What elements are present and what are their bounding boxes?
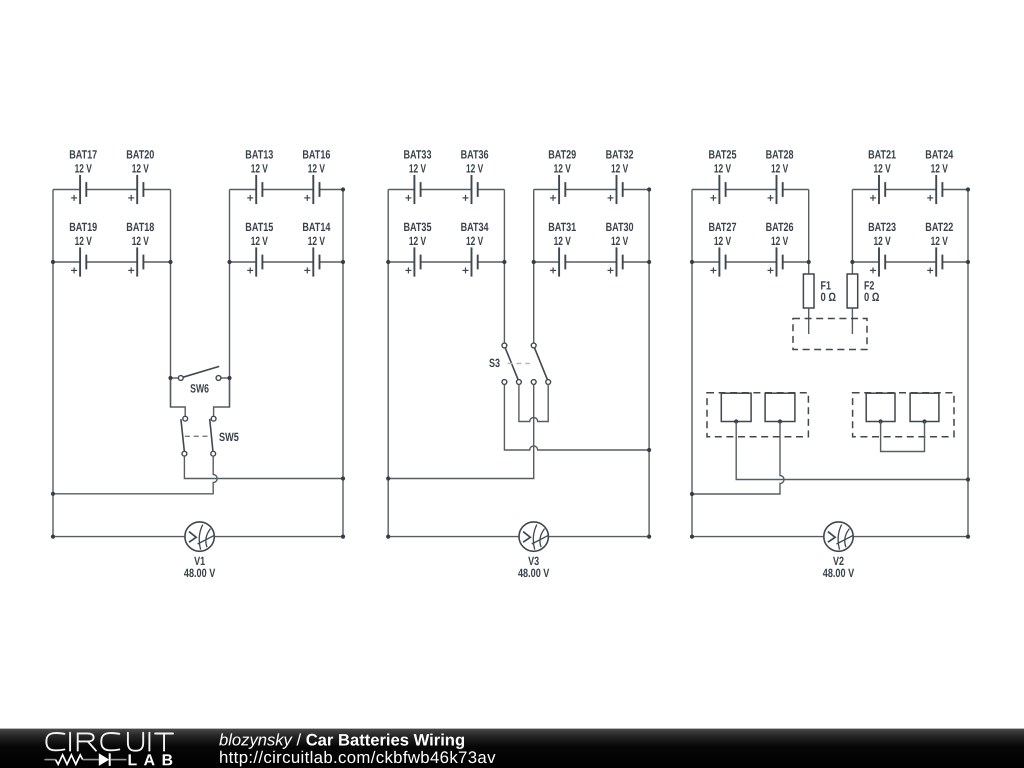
svg-text:12 V: 12 V xyxy=(251,162,268,176)
svg-text:12 V: 12 V xyxy=(771,234,788,248)
svg-text:S3: S3 xyxy=(489,356,500,370)
svg-text:12 V: 12 V xyxy=(931,234,948,248)
svg-text:SW5: SW5 xyxy=(219,430,239,444)
svg-text:BAT17: BAT17 xyxy=(69,148,97,162)
svg-text:12 V: 12 V xyxy=(931,162,948,176)
svg-text:12 V: 12 V xyxy=(132,234,149,248)
svg-text:12 V: 12 V xyxy=(554,234,571,248)
svg-text:http://circuitlab.com/ckbfwb46: http://circuitlab.com/ckbfwb46k73av xyxy=(219,748,496,767)
svg-text:BAT35: BAT35 xyxy=(403,220,431,234)
svg-text:12 V: 12 V xyxy=(611,234,628,248)
svg-text:48.00 V: 48.00 V xyxy=(823,566,854,580)
svg-text:BAT16: BAT16 xyxy=(302,148,330,162)
svg-text:BAT21: BAT21 xyxy=(868,148,896,162)
svg-text:BAT27: BAT27 xyxy=(708,220,736,234)
svg-text:BAT29: BAT29 xyxy=(548,148,576,162)
svg-text:12 V: 12 V xyxy=(75,234,92,248)
svg-text:BAT25: BAT25 xyxy=(708,148,736,162)
svg-text:12 V: 12 V xyxy=(771,162,788,176)
svg-text:48.00 V: 48.00 V xyxy=(184,566,215,580)
svg-text:12 V: 12 V xyxy=(308,234,325,248)
svg-text:BAT23: BAT23 xyxy=(868,220,896,234)
svg-text:12 V: 12 V xyxy=(466,234,483,248)
svg-text:BAT14: BAT14 xyxy=(302,220,330,234)
svg-text:12 V: 12 V xyxy=(873,162,890,176)
svg-text:BAT20: BAT20 xyxy=(126,148,154,162)
svg-text:12 V: 12 V xyxy=(132,162,149,176)
svg-text:SW6: SW6 xyxy=(190,382,209,396)
svg-text:12 V: 12 V xyxy=(251,234,268,248)
svg-text:BAT19: BAT19 xyxy=(69,220,97,234)
svg-text:BAT24: BAT24 xyxy=(925,148,953,162)
svg-text:blozynsky / Car Batteries Wiri: blozynsky / Car Batteries Wiring xyxy=(219,730,465,749)
svg-text:BAT22: BAT22 xyxy=(925,220,953,234)
svg-text:BAT18: BAT18 xyxy=(126,220,154,234)
svg-text:BAT31: BAT31 xyxy=(548,220,576,234)
svg-text:0 Ω: 0 Ω xyxy=(864,290,880,304)
svg-text:BAT33: BAT33 xyxy=(403,148,431,162)
svg-text:12 V: 12 V xyxy=(466,162,483,176)
svg-text:12 V: 12 V xyxy=(409,162,426,176)
svg-text:BAT13: BAT13 xyxy=(245,148,273,162)
svg-text:12 V: 12 V xyxy=(409,234,426,248)
svg-text:12 V: 12 V xyxy=(611,162,628,176)
svg-text:BAT26: BAT26 xyxy=(766,220,794,234)
svg-text:BAT15: BAT15 xyxy=(245,220,273,234)
svg-text:12 V: 12 V xyxy=(714,234,731,248)
svg-text:48.00 V: 48.00 V xyxy=(518,566,549,580)
svg-text:12 V: 12 V xyxy=(75,162,92,176)
svg-text:BAT30: BAT30 xyxy=(606,220,634,234)
svg-text:LAB: LAB xyxy=(127,752,173,768)
svg-text:0 Ω: 0 Ω xyxy=(820,290,836,304)
svg-text:BAT32: BAT32 xyxy=(606,148,634,162)
svg-text:12 V: 12 V xyxy=(714,162,731,176)
svg-text:12 V: 12 V xyxy=(308,162,325,176)
svg-text:BAT28: BAT28 xyxy=(766,148,794,162)
svg-text:12 V: 12 V xyxy=(873,234,890,248)
svg-text:BAT34: BAT34 xyxy=(461,220,489,234)
svg-text:12 V: 12 V xyxy=(554,162,571,176)
svg-text:BAT36: BAT36 xyxy=(461,148,489,162)
